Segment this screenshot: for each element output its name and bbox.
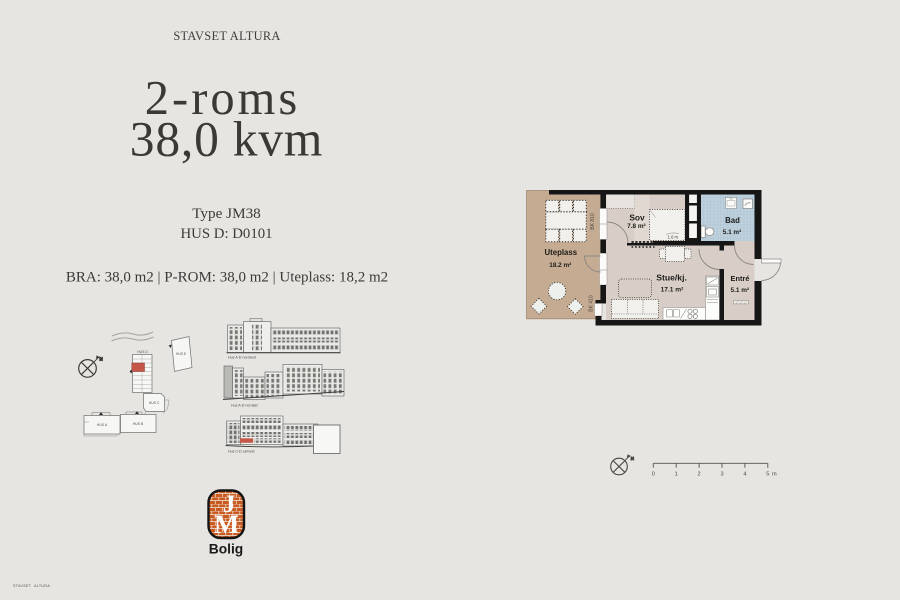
svg-text:5.1 m²: 5.1 m² [723, 229, 741, 236]
svg-text:7.8 m²: 7.8 m² [627, 223, 645, 230]
svg-text:Hus C-D sørvest: Hus C-D sørvest [228, 450, 255, 454]
svg-text:Hus A-D nordvest: Hus A-D nordvest [228, 356, 256, 360]
svg-text:Type JM38: Type JM38 [192, 205, 261, 222]
svg-text:HUS C: HUS C [149, 401, 160, 405]
svg-text:HUS D: D0101: HUS D: D0101 [180, 226, 272, 242]
svg-text:5: 5 [766, 472, 769, 478]
svg-text:Entré: Entré [731, 274, 750, 283]
svg-text:Hus A-D nordøst: Hus A-D nordøst [231, 404, 258, 408]
svg-text:17.1 m²: 17.1 m² [661, 287, 685, 294]
svg-text:BRA: 38,0 m2 | P-ROM: 38,0 m2: BRA: 38,0 m2 | P-ROM: 38,0 m2 | Uteplass… [66, 270, 388, 286]
svg-text:Stue/kj.: Stue/kj. [656, 272, 687, 282]
svg-text:HUS E: HUS E [176, 352, 187, 356]
svg-text:Sov: Sov [629, 213, 645, 223]
svg-text:2: 2 [698, 472, 701, 478]
svg-text:0: 0 [652, 472, 655, 478]
svg-text:BK 410: BK 410 [589, 295, 595, 312]
svg-text:Uteplass: Uteplass [545, 248, 578, 257]
svg-text:3: 3 [720, 472, 723, 478]
svg-text:N: N [100, 357, 103, 362]
svg-text:HUS B: HUS B [133, 422, 144, 426]
svg-text:18.2 m²: 18.2 m² [549, 262, 571, 269]
svg-text:HUS D: HUS D [137, 350, 148, 354]
svg-text:1.6 m: 1.6 m [668, 234, 679, 239]
svg-text:Bolig: Bolig [209, 542, 244, 557]
svg-text:HUS A: HUS A [97, 423, 108, 427]
svg-text:BK 810: BK 810 [590, 213, 596, 230]
svg-text:STAVSET ALTURA: STAVSET ALTURA [173, 29, 280, 43]
svg-text:1: 1 [675, 472, 678, 478]
svg-text:STAVSET ALTURA: STAVSET ALTURA [13, 584, 50, 588]
svg-text:m: m [772, 472, 777, 478]
svg-text:4: 4 [743, 472, 746, 478]
svg-text:Bad: Bad [725, 216, 740, 225]
svg-text:5.1 m²: 5.1 m² [731, 287, 749, 294]
svg-text:38,0 kvm: 38,0 kvm [130, 112, 323, 167]
svg-text:N: N [631, 456, 634, 461]
svg-text:M: M [214, 509, 239, 539]
